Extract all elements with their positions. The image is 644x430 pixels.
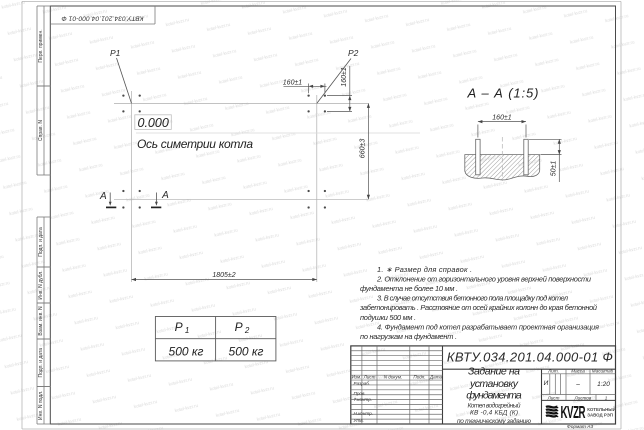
svg-text:подушки 500 мм .: подушки 500 мм . xyxy=(360,313,416,322)
svg-text:Листов: Листов xyxy=(574,395,592,400)
svg-text:Подп.: Подп. xyxy=(413,374,425,379)
svg-text:А: А xyxy=(161,190,169,201)
svg-text:по техническому заданию: по техническому заданию xyxy=(457,417,531,425)
svg-text:Дата: Дата xyxy=(429,374,443,379)
svg-text:А: А xyxy=(99,191,107,202)
svg-text:0.000: 0.000 xyxy=(138,116,169,130)
svg-text:4. Фундамент под котел разраба: 4. Фундамент под котел разрабатывает про… xyxy=(377,322,599,331)
svg-text:Справ. N: Справ. N xyxy=(38,120,44,141)
svg-text:KVZR: KVZR xyxy=(561,402,586,422)
svg-text:Инв. N дубл.: Инв. N дубл. xyxy=(38,270,44,299)
svg-text:КОТЕЛЬНЫЙ: КОТЕЛЬНЫЙ xyxy=(587,407,616,412)
svg-text:N докум.: N докум. xyxy=(384,374,403,379)
svg-text:–: – xyxy=(575,381,580,388)
svg-text:Лит.: Лит. xyxy=(547,369,559,374)
svg-text:Задание на: Задание на xyxy=(468,365,520,377)
svg-text:КВТУ.034.201.04.000-01 Ф: КВТУ.034.201.04.000-01 Ф xyxy=(447,349,613,364)
svg-text:Разраб.: Разраб. xyxy=(354,381,371,386)
svg-text:Масса: Масса xyxy=(571,369,585,374)
svg-text:160±1: 160±1 xyxy=(283,79,303,86)
svg-text:1. ∗ Размер для справок .: 1. ∗ Размер для справок . xyxy=(377,265,472,274)
svg-text:1: 1 xyxy=(605,395,608,400)
svg-text:фундамента не более 10 мм .: фундамента не более 10 мм . xyxy=(360,284,458,293)
svg-text:ЗАВОД РЭП: ЗАВОД РЭП xyxy=(587,413,613,418)
svg-text:забетонировать . Расстояние от: забетонировать . Расстояние от осей край… xyxy=(359,303,597,312)
svg-text:Лист: Лист xyxy=(547,395,560,400)
svg-text:660±3: 660±3 xyxy=(360,139,367,159)
svg-text:Перв. примен.: Перв. примен. xyxy=(38,29,44,62)
svg-text:500 кг: 500 кг xyxy=(169,345,204,359)
svg-text:2. Отклонение от горизонтально: 2. Отклонение от горизонтального уровня … xyxy=(376,274,591,283)
svg-text:установку: установку xyxy=(469,378,519,390)
svg-text:КВТУ.034.201.04.000-01 Ф: КВТУ.034.201.04.000-01 Ф xyxy=(61,14,143,21)
svg-text:Ось симетрии котла: Ось симетрии котла xyxy=(137,137,253,151)
svg-text:1:20: 1:20 xyxy=(597,381,610,388)
svg-text:Изм.: Изм. xyxy=(352,374,362,379)
svg-text:Т.контр.: Т.контр. xyxy=(354,397,373,402)
svg-text:P2: P2 xyxy=(348,48,359,58)
svg-text:Утв.: Утв. xyxy=(354,418,364,423)
svg-text:50±1: 50±1 xyxy=(551,161,558,177)
svg-text:КВ -0,4 КБД (К): КВ -0,4 КБД (К) xyxy=(470,409,518,416)
svg-text:Подп. и дата: Подп. и дата xyxy=(38,348,44,378)
svg-text:Лист: Лист xyxy=(363,374,376,379)
svg-text:160±1: 160±1 xyxy=(492,114,512,121)
svg-text:Масштаб: Масштаб xyxy=(592,369,614,374)
svg-text:Н.контр.: Н.контр. xyxy=(354,411,373,416)
svg-text:Взам. инв. N: Взам. инв. N xyxy=(38,306,44,336)
svg-text:фундамента: фундамента xyxy=(466,390,522,402)
svg-text:1805±2: 1805±2 xyxy=(212,272,235,279)
svg-text:3. В случае отсутствия бетонно: 3. В случае отсутствия бетонного пола пл… xyxy=(377,294,569,303)
svg-text:Подп. и дата: Подп. и дата xyxy=(38,227,44,257)
svg-text:Инв. N подл.: Инв. N подл. xyxy=(38,391,44,420)
svg-text:по нагрузкам на фундамент .: по нагрузкам на фундамент . xyxy=(360,332,457,341)
svg-text:160±1: 160±1 xyxy=(341,67,348,87)
svg-text:А – А (1:5): А – А (1:5) xyxy=(467,86,539,101)
svg-text:500 кг: 500 кг xyxy=(229,345,264,359)
svg-text:Формат А3: Формат А3 xyxy=(567,424,594,430)
svg-text:Пров.: Пров. xyxy=(354,391,366,396)
svg-text:P1: P1 xyxy=(110,48,121,58)
svg-text:И: И xyxy=(544,380,549,387)
